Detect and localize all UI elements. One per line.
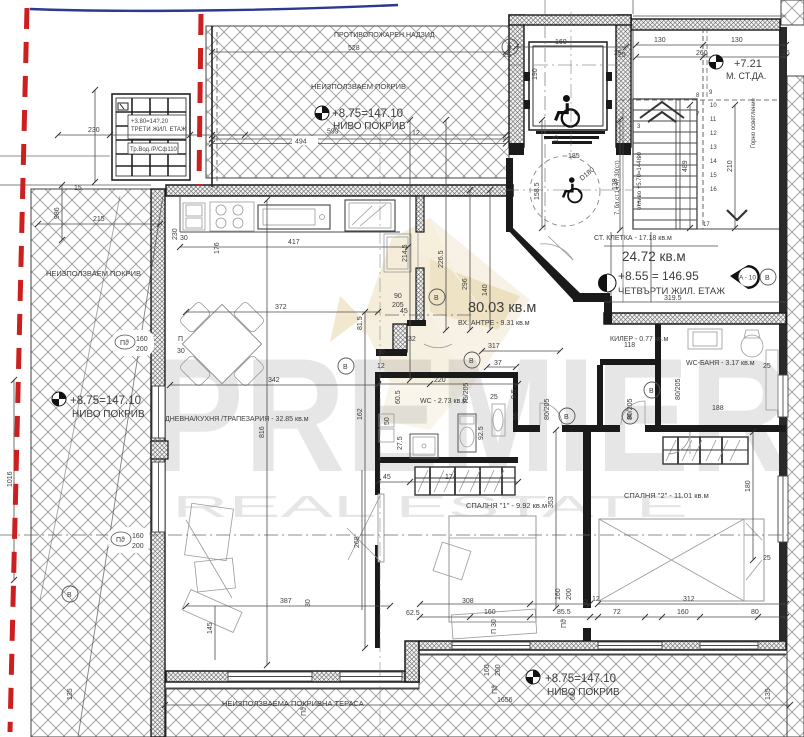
svg-text:25: 25 bbox=[490, 394, 498, 401]
svg-text:30: 30 bbox=[177, 348, 185, 355]
svg-text:230: 230 bbox=[172, 228, 179, 240]
svg-text:372: 372 bbox=[275, 304, 287, 311]
svg-text:WC - 2.73 кв.м: WC - 2.73 кв.м bbox=[420, 398, 467, 405]
svg-text:15: 15 bbox=[74, 185, 82, 192]
svg-text:226.5: 226.5 bbox=[438, 250, 445, 268]
svg-text:353: 353 bbox=[548, 496, 555, 508]
svg-text:135: 135 bbox=[67, 688, 74, 700]
svg-text:72: 72 bbox=[613, 609, 621, 616]
svg-text:П 30: П 30 bbox=[491, 619, 498, 634]
svg-text:В: В bbox=[564, 414, 569, 421]
svg-text:180: 180 bbox=[745, 480, 752, 492]
svg-text:160: 160 bbox=[555, 39, 567, 46]
svg-text:160: 160 bbox=[136, 336, 148, 343]
svg-text:25: 25 bbox=[763, 363, 771, 370]
svg-text:138: 138 bbox=[612, 178, 619, 190]
svg-text:ПРОТИВОПОЖАРЕН НАДЗИД: ПРОТИВОПОЖАРЕН НАДЗИД bbox=[334, 32, 435, 39]
svg-text:В: В bbox=[627, 414, 632, 421]
svg-text:Пϑ: Пϑ bbox=[561, 619, 568, 628]
svg-text:12: 12 bbox=[412, 130, 420, 137]
svg-text:+8.75=147.10: +8.75=147.10 bbox=[70, 395, 141, 407]
svg-text:В: В bbox=[343, 364, 348, 371]
svg-text:13: 13 bbox=[710, 145, 717, 151]
svg-text:160: 160 bbox=[677, 609, 689, 616]
svg-text:1016: 1016 bbox=[7, 471, 14, 487]
svg-text:130: 130 bbox=[654, 37, 666, 44]
svg-text:190: 190 bbox=[532, 68, 539, 80]
svg-text:528: 528 bbox=[348, 45, 360, 52]
svg-text:30: 30 bbox=[305, 599, 312, 607]
svg-text:В: В bbox=[507, 45, 512, 52]
svg-text:160: 160 bbox=[484, 664, 491, 676]
svg-text:НИВО ПОКРИВ: НИВО ПОКРИВ bbox=[547, 687, 620, 698]
svg-text:160: 160 bbox=[132, 533, 144, 540]
svg-text:32: 32 bbox=[408, 336, 416, 343]
svg-text:КИЛЕР - 0.77 кв.м: КИЛЕР - 0.77 кв.м bbox=[610, 336, 669, 343]
svg-text:ДНЕВНА/КУХНЯ /ТРАПЕЗАРИЯ - 32.: ДНЕВНА/КУХНЯ /ТРАПЕЗАРИЯ - 32.85 кв.м bbox=[165, 416, 309, 423]
svg-text:62.5: 62.5 bbox=[406, 610, 420, 617]
svg-text:М. СТ.ДА.: М. СТ.ДА. bbox=[726, 71, 766, 81]
svg-text:268: 268 bbox=[354, 536, 361, 548]
svg-text:ТРЕТИ ЖИЛ. ЕТАЖ: ТРЕТИ ЖИЛ. ЕТАЖ bbox=[131, 127, 187, 133]
svg-text:90: 90 bbox=[394, 293, 402, 300]
svg-text:387: 387 bbox=[280, 598, 292, 605]
svg-text:Пϑ: Пϑ bbox=[120, 340, 129, 347]
svg-text:342: 342 bbox=[268, 377, 280, 384]
svg-text:17: 17 bbox=[703, 222, 710, 228]
svg-text:25: 25 bbox=[782, 50, 790, 57]
svg-text:12: 12 bbox=[377, 363, 385, 370]
svg-text:188: 188 bbox=[712, 405, 724, 412]
svg-text:135: 135 bbox=[765, 688, 772, 700]
svg-text:174: 174 bbox=[445, 474, 457, 481]
svg-text:14: 14 bbox=[710, 159, 717, 165]
svg-text:12: 12 bbox=[710, 131, 717, 137]
svg-text:185: 185 bbox=[568, 153, 580, 160]
svg-text:80: 80 bbox=[751, 609, 759, 616]
svg-text:162: 162 bbox=[357, 408, 364, 420]
svg-text:145: 145 bbox=[207, 622, 214, 634]
svg-text:15: 15 bbox=[553, 135, 560, 143]
svg-text:НИВО ПОКРИВ: НИВО ПОКРИВ bbox=[72, 409, 145, 420]
svg-text:СПАЛНЯ "1" - 9.92 кв.м: СПАЛНЯ "1" - 9.92 кв.м bbox=[466, 501, 547, 510]
svg-text:+8.75=147.10: +8.75=147.10 bbox=[545, 673, 616, 685]
svg-text:30: 30 bbox=[583, 599, 590, 607]
svg-text:45: 45 bbox=[400, 308, 408, 315]
svg-text:80/205: 80/205 bbox=[675, 378, 682, 400]
svg-text:СТ. КЛЕТКА - 17.18 кв.м: СТ. КЛЕТКА - 17.18 кв.м bbox=[594, 235, 672, 242]
svg-text:16: 16 bbox=[710, 187, 717, 193]
svg-text:30: 30 bbox=[180, 235, 188, 242]
svg-text:ЧЕТВЪРТИ ЖИЛ. ЕТАЖ: ЧЕТВЪРТИ ЖИЛ. ЕТАЖ bbox=[618, 286, 725, 297]
svg-text:11: 11 bbox=[710, 117, 717, 123]
svg-text:П: П bbox=[178, 336, 183, 343]
svg-text:СПАЛНЯ "2" - 11.01 кв.м: СПАЛНЯ "2" - 11.01 кв.м bbox=[624, 491, 709, 500]
svg-text:45: 45 bbox=[383, 474, 391, 481]
svg-text:205: 205 bbox=[392, 302, 404, 309]
svg-text:417: 417 bbox=[288, 239, 300, 246]
svg-text:В: В bbox=[434, 295, 439, 302]
svg-text:986: 986 bbox=[54, 207, 61, 219]
svg-text:В: В bbox=[469, 358, 474, 365]
svg-text:489: 489 bbox=[682, 160, 689, 172]
svg-text:816: 816 bbox=[259, 426, 266, 438]
svg-text:158.5: 158.5 bbox=[534, 182, 541, 200]
svg-text:296: 296 bbox=[462, 278, 469, 290]
svg-text:160: 160 bbox=[484, 609, 496, 616]
svg-text:Тр.Вод./Р/Сф110: Тр.Вод./Р/Сф110 bbox=[130, 147, 178, 153]
svg-text:140: 140 bbox=[482, 284, 489, 296]
svg-text:37: 37 bbox=[494, 360, 502, 367]
svg-text:317: 317 bbox=[488, 343, 500, 350]
svg-text:9.5: 9.5 bbox=[511, 389, 518, 399]
svg-text:494: 494 bbox=[295, 139, 307, 146]
svg-text:80/205: 80/205 bbox=[544, 398, 551, 420]
svg-text:WC-БАНЯ - 3.17 кв.м: WC-БАНЯ - 3.17 кв.м bbox=[686, 360, 755, 367]
svg-text:НИВО ПОКРИВ: НИВО ПОКРИВ bbox=[333, 121, 406, 132]
svg-text:215: 215 bbox=[93, 216, 105, 223]
svg-text:Пϑ: Пϑ bbox=[492, 685, 499, 694]
svg-text:В: В bbox=[765, 275, 770, 282]
svg-text:+7.21: +7.21 bbox=[734, 58, 762, 70]
svg-text:118: 118 bbox=[624, 342, 635, 349]
svg-text:НЕИЗПОЛЗВАЕМА ПОКРИВНА ТЕРАСА: НЕИЗПОЛЗВАЕМА ПОКРИВНА ТЕРАСА bbox=[222, 699, 364, 708]
svg-text:200: 200 bbox=[136, 346, 148, 353]
svg-text:160: 160 bbox=[555, 588, 562, 600]
svg-text:55: 55 bbox=[513, 412, 520, 420]
svg-text:260: 260 bbox=[696, 50, 708, 57]
svg-text:A - 10: A - 10 bbox=[739, 275, 756, 282]
svg-text:24.72 кв.м: 24.72 кв.м bbox=[622, 249, 686, 264]
svg-text:81.5: 81.5 bbox=[357, 316, 364, 330]
svg-text:+3.80=14?.20: +3.80=14?.20 bbox=[131, 119, 169, 125]
svg-text:В: В bbox=[649, 388, 654, 395]
svg-text:312: 312 bbox=[683, 596, 695, 603]
svg-text:НЕИЗПОЛЗВАЕМ ПОКРИВ: НЕИЗПОЛЗВАЕМ ПОКРИВ bbox=[46, 269, 141, 278]
svg-text:60.5: 60.5 bbox=[395, 390, 402, 404]
svg-text:85.5: 85.5 bbox=[557, 609, 571, 616]
svg-text:Пϑ: Пϑ bbox=[116, 537, 125, 544]
svg-text:200: 200 bbox=[495, 664, 502, 676]
svg-text:92.5: 92.5 bbox=[478, 426, 485, 440]
svg-text:10: 10 bbox=[710, 103, 717, 109]
svg-text:200: 200 bbox=[566, 588, 573, 600]
svg-text:Пϑ: Пϑ bbox=[301, 707, 308, 716]
svg-text:ВХ. АНТРЕ - 9.31 кв.м: ВХ. АНТРЕ - 9.31 кв.м bbox=[458, 320, 530, 327]
svg-text:отливо +5.70=144.10: отливо +5.70=144.10 bbox=[637, 152, 643, 210]
svg-text:176: 176 bbox=[214, 242, 221, 254]
svg-text:+8.55 = 146.95: +8.55 = 146.95 bbox=[618, 269, 699, 283]
svg-text:12: 12 bbox=[592, 596, 600, 603]
svg-text:15: 15 bbox=[710, 173, 717, 179]
svg-text:220: 220 bbox=[434, 377, 446, 384]
svg-text:+8.75=147.10: +8.75=147.10 bbox=[332, 108, 403, 120]
svg-text:308: 308 bbox=[462, 598, 474, 605]
svg-text:НЕИЗПОЛЗВАЕМ ПОКРИВ: НЕИЗПОЛЗВАЕМ ПОКРИВ bbox=[311, 82, 406, 91]
svg-text:200: 200 bbox=[132, 543, 144, 550]
svg-text:27.5: 27.5 bbox=[397, 436, 404, 450]
svg-text:В: В bbox=[67, 592, 72, 599]
svg-text:Горно осветление: Горно осветление bbox=[751, 97, 757, 148]
svg-text:25: 25 bbox=[614, 50, 622, 57]
svg-text:130: 130 bbox=[731, 37, 743, 44]
svg-text:1656: 1656 bbox=[497, 697, 513, 704]
svg-text:25: 25 bbox=[763, 555, 771, 562]
svg-text:50: 50 bbox=[384, 417, 391, 425]
svg-text:230: 230 bbox=[88, 127, 100, 134]
svg-text:80.03 кв.м: 80.03 кв.м bbox=[468, 300, 536, 316]
svg-text:30: 30 bbox=[377, 349, 385, 356]
svg-text:210: 210 bbox=[727, 160, 734, 172]
